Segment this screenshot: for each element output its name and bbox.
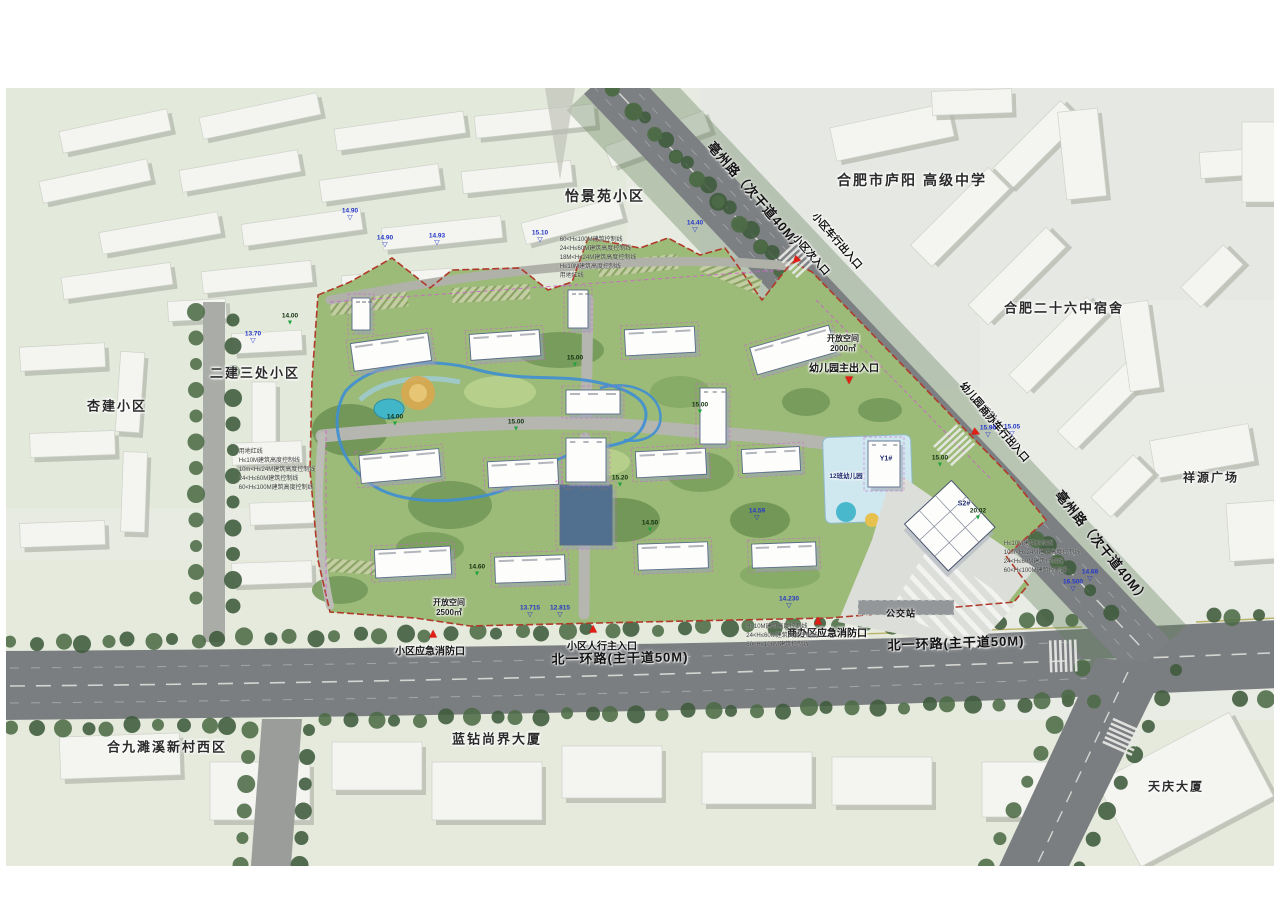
context-building [702, 752, 816, 809]
context-building [115, 351, 149, 438]
site-building [562, 386, 624, 418]
context-building [232, 330, 307, 359]
context-building [332, 742, 426, 795]
site-building [864, 437, 904, 491]
context-building [19, 343, 109, 377]
road-west-north [203, 302, 225, 642]
site-plan-map: 怡景苑小区合肥市庐阳 高级中学合肥二十六中宿舍祥源广场二建三处小区杏建小区合九濉… [0, 0, 1280, 905]
context-building [232, 441, 307, 471]
context-building [832, 757, 936, 810]
context-building [562, 746, 666, 803]
bottom-margin [0, 866, 1280, 905]
context-building [120, 452, 151, 538]
context-building [432, 762, 546, 825]
context-building [932, 88, 1017, 120]
context-building [59, 733, 185, 784]
site-building [556, 481, 616, 549]
site-building [562, 434, 610, 486]
top-margin [0, 0, 1280, 88]
left-margin [0, 0, 6, 905]
site-building [696, 384, 730, 448]
site-plan-scene [0, 0, 1280, 905]
context-building [232, 560, 317, 590]
site-building [348, 294, 374, 334]
right-margin [1274, 0, 1280, 905]
context-building [30, 430, 120, 462]
context-building [1226, 500, 1280, 566]
context-building [20, 520, 110, 552]
site-building [564, 286, 592, 332]
bus-bay [858, 600, 954, 615]
